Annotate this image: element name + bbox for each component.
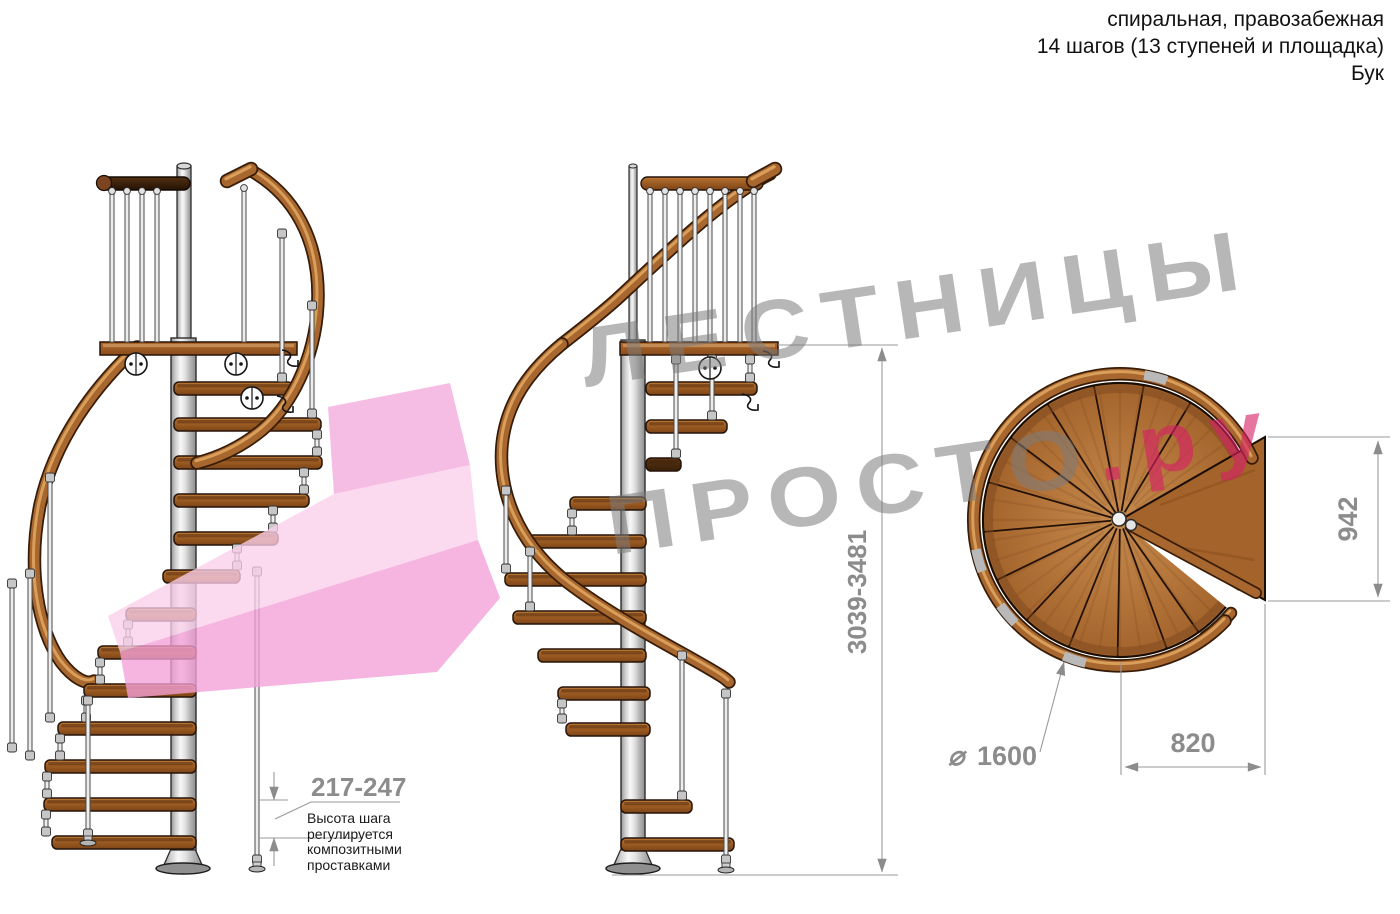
title-material: Бук (1037, 60, 1384, 87)
diameter-symbol: ⌀ (948, 741, 968, 771)
platform-width-value: 942 (1333, 496, 1363, 541)
side-view-elevation (8, 163, 323, 874)
dimension-platform-width: 942 (1265, 437, 1390, 775)
step-height-value: 217-247 (311, 772, 406, 802)
side-view-front (501, 164, 780, 874)
dimension-platform-depth: 820 (1121, 662, 1261, 775)
step-height-note: Высота шага регулируется композитными пр… (307, 811, 402, 873)
title-block: спиральная, правозабежная 14 шагов (13 с… (1037, 6, 1384, 87)
dimension-diameter: ⌀ 1600 (948, 662, 1064, 771)
diameter-value: 1600 (977, 741, 1037, 771)
title-steps: 14 шагов (13 ступеней и площадка) (1037, 33, 1384, 60)
total-height-value: 3039-3481 (842, 530, 872, 654)
plan-view-top (973, 372, 1265, 666)
staircase-drawing: 217-247 3039-3481 942 820 ⌀ 1600 (0, 0, 1400, 914)
platform-depth-value: 820 (1170, 728, 1215, 758)
title-type: спиральная, правозабежная (1037, 6, 1384, 33)
